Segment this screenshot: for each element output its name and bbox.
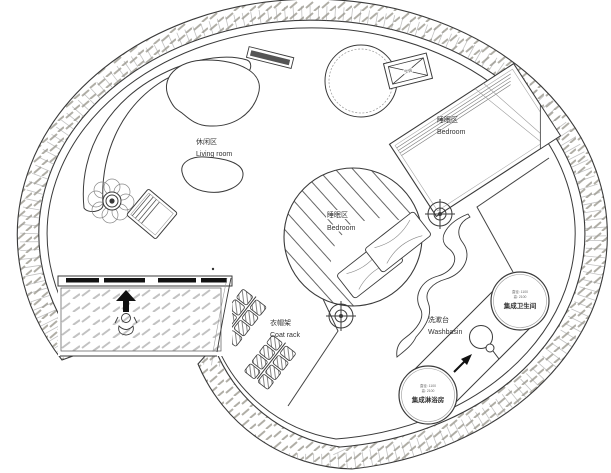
washbasin-sink <box>470 326 500 360</box>
center-bed-platform <box>284 168 435 306</box>
living-room-label-zh: 休闲区 <box>196 137 217 146</box>
bathroom-pod-label: 集成卫生间 <box>503 301 537 310</box>
coffee-table <box>182 157 243 192</box>
speck <box>212 268 214 270</box>
shower-spec-height: 高: 2100 <box>422 388 435 393</box>
bathroom-spec-diameter: 直径: 1100 <box>512 289 528 294</box>
floor-plan: 空调 <box>0 0 611 473</box>
shower-pod <box>399 366 457 424</box>
washbasin-label-zh: 洗漱台 <box>428 315 449 324</box>
center-bedroom-label-en: Bedroom <box>327 225 356 232</box>
washbasin-label-en: Washbasin <box>428 329 462 336</box>
living-room-label-en: Living room <box>196 151 232 158</box>
coat-rack-unit <box>244 333 297 389</box>
entry-corridor <box>58 276 232 356</box>
shower-spec-diameter: 直径: 1100 <box>420 383 436 388</box>
bedroom-label-zh: 睡眠区 <box>437 116 458 124</box>
center-bedroom-label-zh: 睡眠区 <box>327 211 348 219</box>
floor-plan-drawing: 空调 <box>0 0 611 473</box>
lounge-chair <box>127 189 178 239</box>
coat-rack-label-en: Coat rack <box>270 332 300 339</box>
wall-shelf <box>246 47 293 69</box>
ac-unit: 空调 <box>384 53 433 89</box>
flow-arrow-icon <box>454 354 472 372</box>
bathroom-spec-height: 高: 2100 <box>514 294 527 299</box>
shower-pod-label: 集成淋浴房 <box>411 395 445 404</box>
lounge-pad <box>166 60 259 126</box>
round-table <box>325 45 397 117</box>
coat-rack-label-zh: 衣帽架 <box>270 318 291 327</box>
bathroom-pod <box>491 272 549 330</box>
bedroom-label-en: Bedroom <box>437 129 466 136</box>
